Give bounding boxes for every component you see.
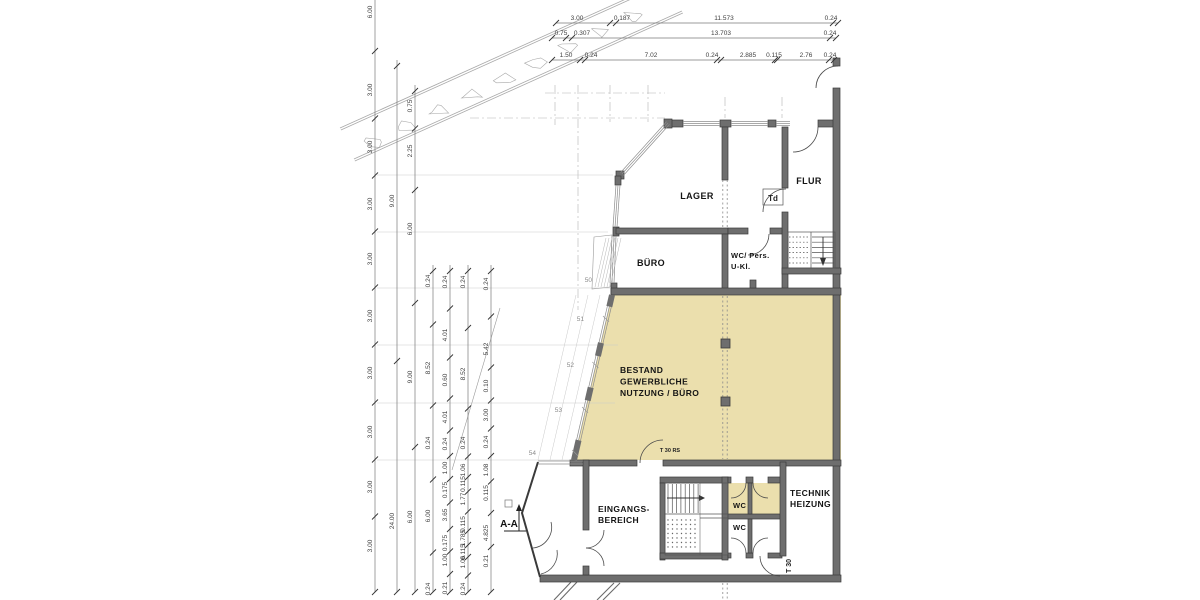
stair-lower-flight-dot xyxy=(676,533,677,534)
wall-segment xyxy=(750,280,756,288)
dim-label-top: 2.885 xyxy=(740,52,757,59)
dim-label-left: 0.24 xyxy=(425,582,432,595)
dim-label-left: 0.10 xyxy=(483,379,490,392)
dim-label-left: 3.65 xyxy=(442,508,449,521)
dim-label-top: 13.703 xyxy=(711,30,731,37)
wall-segment xyxy=(728,477,731,483)
room-label-bestand: NUTZUNG / BÜRO xyxy=(620,388,699,398)
door-arc-t30 xyxy=(760,556,780,576)
stair-lower-flight-dot xyxy=(681,533,682,534)
wall-segment xyxy=(782,268,841,274)
stair-upper-outline xyxy=(788,232,835,268)
dim-label-top: 11.573 xyxy=(714,15,734,22)
lightwell-hatch xyxy=(607,238,618,287)
wall-segment xyxy=(660,483,665,560)
dim-label-top: 0.115 xyxy=(766,52,782,59)
boundary-stone xyxy=(493,73,516,83)
window-left xyxy=(614,236,616,283)
wall-segment xyxy=(660,477,728,483)
stair-lower-flight-dot xyxy=(690,528,691,529)
boundary-stone xyxy=(592,29,609,38)
boundary-stone xyxy=(462,89,483,98)
lightwell-hatch xyxy=(604,238,615,287)
dim-label-left: 2.25 xyxy=(407,144,414,157)
stair-lower-flight-dot xyxy=(672,546,673,547)
facade-point-label: 52 xyxy=(567,362,575,369)
dim-label-left: 6.00 xyxy=(407,510,414,523)
stair-lower-flight-dot xyxy=(694,542,695,543)
room-label-wc-pers: U-Kl. xyxy=(731,262,751,271)
dim-label-left: 9.00 xyxy=(407,370,414,383)
facade-post xyxy=(609,295,612,307)
wall-segment xyxy=(746,553,753,558)
dim-label-left: 0.21 xyxy=(483,554,490,567)
facade-point-label: 50 xyxy=(585,277,593,284)
stair-lower-flight-dot xyxy=(672,533,673,534)
wall-segment xyxy=(663,460,841,466)
facade-point-label: 54 xyxy=(529,450,537,457)
dim-label-top: 0.24 xyxy=(824,30,837,37)
stair-lower-flight-dot xyxy=(681,542,682,543)
section-marker-label: A-A xyxy=(500,519,518,530)
facade-post xyxy=(598,343,601,356)
dim-label-top: 0.24 xyxy=(585,52,598,59)
dim-label-left: 3.00 xyxy=(367,480,374,493)
room-label-eingangsbereich: BEREICH xyxy=(598,515,639,525)
wall-segment xyxy=(728,228,748,234)
floor-plan-canvas: 3.000.18711.5730.240.750.30713.7030.241.… xyxy=(0,0,1200,600)
window-angled xyxy=(623,124,669,175)
room-label-wc-bottom: WC xyxy=(733,523,746,532)
stair-lower-flight-dot xyxy=(685,528,686,529)
stair-lower-flight-dot xyxy=(685,537,686,538)
stair-lower-flight-dot xyxy=(681,524,682,525)
dim-label-left: 0.24 xyxy=(483,277,490,290)
stair-lower-flight-dot xyxy=(676,519,677,520)
stair-lower-flight-dot xyxy=(685,524,686,525)
wall-segment xyxy=(616,228,728,234)
room-label-buero: BÜRO xyxy=(637,258,665,268)
dim-label-top: 0.307 xyxy=(574,30,591,37)
dim-label-left: 3.00 xyxy=(367,83,374,96)
room-label-technik-heizung: TECHNIK xyxy=(790,488,831,498)
stair-central-outline xyxy=(665,483,728,555)
section-arrow-icon xyxy=(516,504,522,511)
dim-label-left: 3.00 xyxy=(367,366,374,379)
stair-lower-flight-dot xyxy=(694,528,695,529)
dim-label-top: 0.24 xyxy=(825,15,838,22)
stair-lower-flight-dot xyxy=(690,546,691,547)
stair-lower-flight-dot xyxy=(685,542,686,543)
column-marker xyxy=(721,339,730,348)
dim-label-top: 3.00 xyxy=(571,15,584,22)
stair-lower-flight-dot xyxy=(672,524,673,525)
stair-lower-flight-dot xyxy=(676,546,677,547)
stair-lower-flight-dot xyxy=(681,546,682,547)
stair-lower-flight-dot xyxy=(672,542,673,543)
stair-lower-flight-dot xyxy=(690,542,691,543)
wall-segment xyxy=(780,462,786,556)
band-edge-lower xyxy=(355,13,683,161)
stair-lower-flight-dot xyxy=(694,524,695,525)
dim-label-left: 0.21 xyxy=(442,581,449,594)
wall-segment xyxy=(611,288,841,295)
dim-label-left: 0.24 xyxy=(460,436,467,449)
stair-lower-flight-dot xyxy=(667,524,668,525)
stair-lower-flight-dot xyxy=(681,537,682,538)
dim-label-left: 24.00 xyxy=(389,512,396,529)
wall-segment xyxy=(782,127,788,188)
stair-lower-flight-dot xyxy=(667,546,668,547)
dim-label-left: 1.06 xyxy=(460,555,467,568)
wall-segment xyxy=(720,120,731,127)
door-arc-flur-top xyxy=(793,127,818,152)
door-arc-vestibule-1 xyxy=(533,522,552,548)
dim-label-left: 0.24 xyxy=(442,437,449,450)
stair-lower-flight-dot xyxy=(690,533,691,534)
column-marker xyxy=(721,397,730,406)
window-angled xyxy=(621,122,667,173)
dim-label-left: 0.175 xyxy=(442,481,449,498)
stair-down-arrow-icon xyxy=(820,258,826,266)
dim-label-left: 4.01 xyxy=(442,410,449,423)
stair-lower-flight-dot xyxy=(694,537,695,538)
stair-lower-flight-dot xyxy=(681,528,682,529)
boundary-stone xyxy=(398,121,415,131)
dim-label-left: 8.52 xyxy=(425,361,432,374)
room-label-technik-heizung: HEIZUNG xyxy=(790,499,831,509)
dim-label-left: 0.115 xyxy=(460,476,467,492)
door-arc-entrance-double-1 xyxy=(586,530,604,548)
stair-lower-flight-dot xyxy=(690,537,691,538)
stair-lower-flight-dot xyxy=(667,519,668,520)
door-label-td: Td xyxy=(768,194,778,203)
band-edge-lower-inner xyxy=(354,11,682,159)
stair-lower-flight-dot xyxy=(667,537,668,538)
door-label-t30: T 30 xyxy=(786,559,793,573)
wall-segment xyxy=(583,566,589,575)
dim-label-left: 0.115 xyxy=(460,516,467,532)
wall-segment xyxy=(833,88,840,578)
stair-lower-flight-dot xyxy=(694,519,695,520)
dim-label-left: 1.08 xyxy=(483,463,490,476)
dim-label-top: 0.24 xyxy=(706,52,719,59)
bestand-area-fill xyxy=(574,295,841,460)
wall-segment xyxy=(722,234,728,292)
dim-label-left: 3.00 xyxy=(367,309,374,322)
dim-label-left: 6.00 xyxy=(407,222,414,235)
wall-segment xyxy=(728,553,731,558)
wall-segment xyxy=(728,514,782,519)
wall-segment xyxy=(770,228,782,234)
room-label-bestand: GEWERBLICHE xyxy=(620,377,688,387)
dim-label-left: 3.00 xyxy=(483,408,490,421)
stair-lower-flight-dot xyxy=(676,528,677,529)
stair-lower-flight-dot xyxy=(667,542,668,543)
dim-label-left: 1.00 xyxy=(442,461,449,474)
room-label-flur: FLUR xyxy=(796,176,822,186)
dim-label-left: 0.24 xyxy=(425,274,432,287)
dim-label-left: 1.785 xyxy=(460,529,467,546)
dim-label-left: 3.00 xyxy=(367,252,374,265)
stair-lower-flight-dot xyxy=(667,528,668,529)
stair-lower-flight-dot xyxy=(676,537,677,538)
room-label-bestand: BESTAND xyxy=(620,365,663,375)
dim-label-left: 0.24 xyxy=(460,582,467,595)
wall-segment xyxy=(768,120,776,127)
dim-label-left: 6.00 xyxy=(425,509,432,522)
stair-lower-flight-dot xyxy=(694,533,695,534)
dim-label-left: 3.00 xyxy=(367,425,374,438)
dim-label-left: 3.00 xyxy=(367,140,374,153)
facade-point-label: 53 xyxy=(555,407,563,414)
facade-point-label: 51 xyxy=(577,316,585,323)
dim-label-left: 0.175 xyxy=(442,534,449,551)
stair-lower-flight-dot xyxy=(672,537,673,538)
stair-lower-flight-dot xyxy=(694,546,695,547)
wall-segment xyxy=(833,58,840,66)
dim-label-top: 0.75 xyxy=(555,30,568,37)
lightwell-hatch xyxy=(595,238,606,287)
dim-label-left: 4.01 xyxy=(442,328,449,341)
room-label-wc-pers: WC/ Pers. xyxy=(731,251,770,260)
survey-line-slant xyxy=(538,295,576,460)
stair-lower-flight-dot xyxy=(672,519,673,520)
stair-lower-flight-dot xyxy=(676,524,677,525)
stair-lower-flight-dot xyxy=(672,528,673,529)
dim-label-left: 8.52 xyxy=(460,367,467,380)
stair-lower-flight-dot xyxy=(676,542,677,543)
vestibule-wall xyxy=(522,462,540,577)
wall-segment xyxy=(722,127,728,180)
wall-segment xyxy=(583,460,589,530)
stair-lower-flight-dot xyxy=(681,519,682,520)
facade-post xyxy=(588,387,591,400)
room-label-lager: LAGER xyxy=(680,191,714,201)
dim-label-left: 0.24 xyxy=(460,275,467,288)
room-label-eingangsbereich: EINGANGS- xyxy=(598,504,650,514)
wall-segment xyxy=(746,477,753,483)
door-arc-wc2a xyxy=(731,538,746,553)
dim-label-left: 0.115 xyxy=(483,485,490,501)
dim-label-left: 3.00 xyxy=(367,197,374,210)
dim-label-left: 4.825 xyxy=(483,524,490,541)
window-angled xyxy=(622,123,668,174)
dim-label-left: 1.06 xyxy=(460,463,467,476)
stair-lower-flight-dot xyxy=(685,546,686,547)
door-arc-vestibule-2 xyxy=(541,550,557,574)
stair-lower-flight-dot xyxy=(690,519,691,520)
boundary-stone xyxy=(429,105,449,114)
wall-segment xyxy=(540,575,841,582)
dim-label-left: 0.75 xyxy=(407,99,414,112)
stair-lower-flight-dot xyxy=(690,524,691,525)
dim-label-left: 0.24 xyxy=(483,435,490,448)
lightwell-outline xyxy=(592,235,612,289)
wall-segment xyxy=(748,483,752,514)
dim-label-left: 1.77 xyxy=(460,492,467,505)
dim-label-left: 0.24 xyxy=(442,275,449,288)
dim-label-left: 9.00 xyxy=(389,194,396,207)
dim-label-left: 0.24 xyxy=(425,436,432,449)
stair-lower-flight-dot xyxy=(685,519,686,520)
wall-segment xyxy=(782,212,788,290)
lightwell-hatch xyxy=(598,238,609,287)
room-label-wc-top: WC xyxy=(733,501,746,510)
stair-lower-flight-dot xyxy=(685,533,686,534)
dim-label-top: 1.50 xyxy=(560,52,573,59)
dim-label-left: 1.00 xyxy=(442,553,449,566)
dim-label-top: 0.24 xyxy=(824,52,837,59)
dim-label-left: 5.42 xyxy=(483,342,490,355)
wall-segment xyxy=(660,553,728,559)
dim-label-top: 0.187 xyxy=(614,15,631,22)
dim-label-left: 6.00 xyxy=(367,5,374,18)
dim-label-top: 7.02 xyxy=(645,52,658,59)
wall-segment xyxy=(722,477,728,560)
door-arc-top-right-entry xyxy=(816,66,838,88)
dim-label-left: 0.60 xyxy=(442,373,449,386)
boundary-stone xyxy=(525,58,548,68)
door-arc-entrance-double-2 xyxy=(586,548,604,566)
wall-segment xyxy=(615,176,621,185)
door-label-t30rs: T 30 RS xyxy=(660,448,681,454)
door-arc-wc2b xyxy=(753,538,768,553)
wall-segment xyxy=(748,519,752,553)
section-marker-box-icon xyxy=(505,500,512,507)
dim-label-left: 3.00 xyxy=(367,539,374,552)
dim-label-top: 2.76 xyxy=(800,52,813,59)
floor-plan-drawing: 3.000.18711.5730.240.750.30713.7030.241.… xyxy=(0,0,1200,600)
stair-lower-flight-dot xyxy=(667,533,668,534)
